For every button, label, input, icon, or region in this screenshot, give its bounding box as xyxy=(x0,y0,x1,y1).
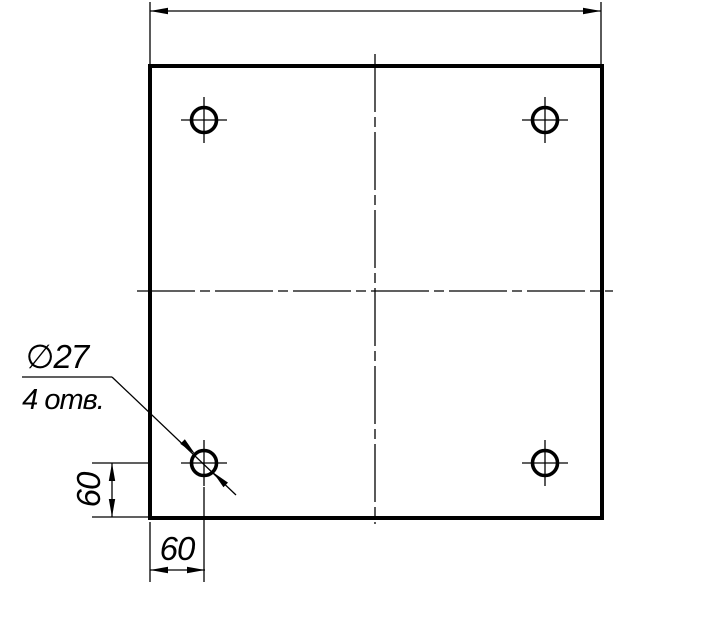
hole-bottom-right xyxy=(522,440,568,486)
arrowhead-lower xyxy=(211,470,228,487)
arrowhead-right xyxy=(583,8,601,14)
diameter-label: ∅27 xyxy=(26,338,91,375)
plate-drawing: ∅27 4 отв. 60 60 xyxy=(0,0,713,631)
arrowhead-upper xyxy=(180,439,197,456)
hole-top-right xyxy=(522,97,568,143)
plate-outline xyxy=(150,66,602,518)
hole-top-left xyxy=(181,97,227,143)
arrowhead-bottom xyxy=(109,499,115,517)
holes-count-label: 4 отв. xyxy=(22,384,104,416)
technical-drawing-canvas: ∅27 4 отв. 60 60 xyxy=(0,0,713,631)
dimension-left-offset: 60 xyxy=(70,463,152,517)
left-offset-value: 60 xyxy=(70,471,107,507)
arrowhead-right xyxy=(187,567,205,573)
arrowhead-top xyxy=(109,463,115,481)
bottom-offset-value: 60 xyxy=(160,530,196,567)
dimension-bottom-offset: 60 xyxy=(150,487,205,582)
arrowhead-left xyxy=(150,567,168,573)
arrowhead-left xyxy=(150,8,168,14)
